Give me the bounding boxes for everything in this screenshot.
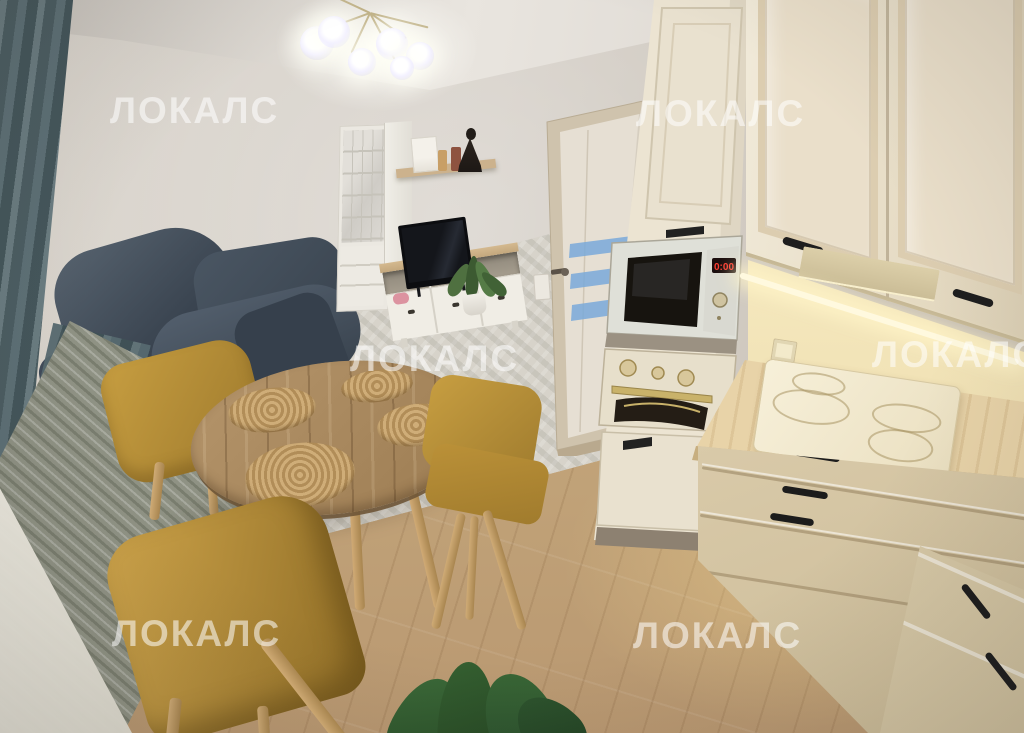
watermark: ЛОКАЛС [112,613,281,655]
apartment-photo: 0:00 [0,0,1024,733]
watermark: ЛОКАЛС [633,615,802,657]
watermark: ЛОКАЛС [110,90,279,132]
watermark: ЛОКАЛС [636,93,805,135]
watermark: ЛОКАЛС [350,338,519,380]
watermark: ЛОКАЛС [872,334,1024,376]
